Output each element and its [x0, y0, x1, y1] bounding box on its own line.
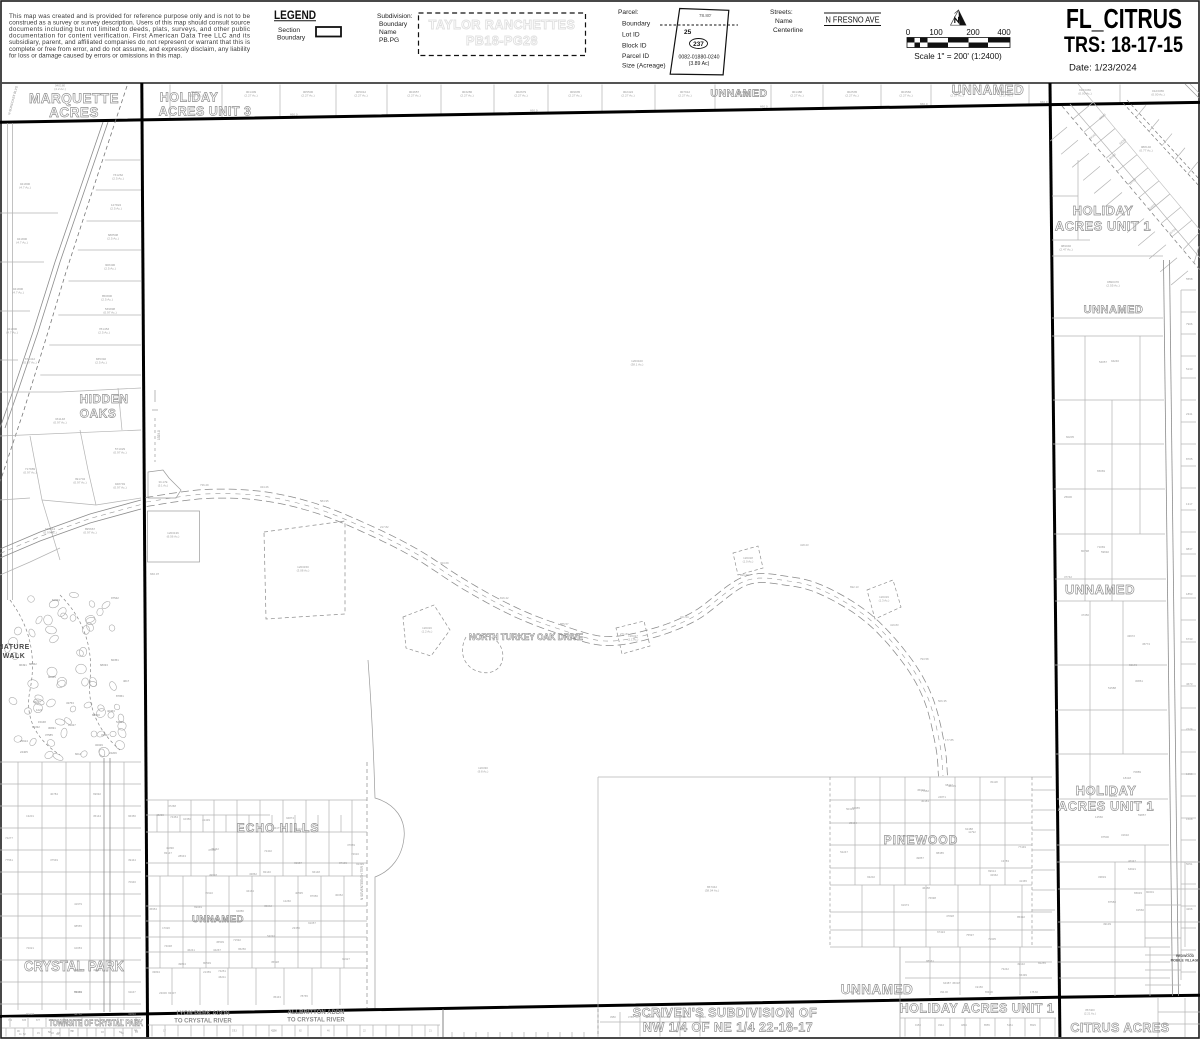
svg-text:(2.27 Ac.): (2.27 Ac.) [899, 94, 912, 98]
svg-text:5558: 5558 [1186, 277, 1193, 281]
svg-text:ACRES UNIT 1: ACRES UNIT 1 [1058, 799, 1154, 814]
svg-text:30052: 30052 [335, 893, 343, 897]
svg-text:32029: 32029 [95, 743, 103, 747]
svg-text:2341: 2341 [1186, 412, 1193, 416]
svg-text:25194: 25194 [849, 821, 857, 825]
svg-text:0: 0 [906, 28, 911, 37]
svg-text:(2.27 Ac.): (2.27 Ac.) [678, 94, 691, 98]
svg-text:TO CRYSTAL RIVER: TO CRYSTAL RIVER [287, 1018, 345, 1024]
svg-text:28643: 28643 [178, 854, 186, 858]
svg-text:54057: 54057 [1099, 360, 1107, 364]
svg-text:65933: 65933 [1134, 891, 1142, 895]
svg-text:33834: 33834 [152, 970, 160, 974]
svg-text:74038: 74038 [164, 944, 172, 948]
svg-text:23356: 23356 [292, 926, 300, 930]
svg-text:(2.21 Ac.): (2.21 Ac.) [1084, 1011, 1096, 1015]
svg-text:77449: 77449 [1018, 845, 1026, 849]
svg-text:37549: 37549 [50, 858, 58, 862]
svg-text:34267: 34267 [213, 948, 221, 952]
svg-text:95256: 95256 [238, 947, 246, 951]
svg-text:73242: 73242 [1001, 967, 1009, 971]
svg-text:177.85: 177.85 [945, 738, 954, 742]
svg-text:Subdivision:: Subdivision: [377, 13, 413, 20]
svg-text:UNNAMED: UNNAMED [1084, 304, 1144, 316]
svg-text:(2.5 Ac.): (2.5 Ac.) [98, 331, 110, 335]
svg-text:45509: 45509 [216, 940, 224, 944]
svg-text:80539: 80539 [203, 961, 211, 965]
svg-text:66148: 66148 [312, 870, 320, 874]
svg-text:59857: 59857 [1138, 813, 1146, 817]
svg-text:3950: 3950 [610, 1015, 616, 1019]
svg-text:(2.27 Ac.): (2.27 Ac.) [514, 94, 527, 98]
svg-text:Section: Section [278, 27, 300, 34]
svg-text:97500: 97500 [1101, 835, 1109, 839]
svg-text:(0.97 Ac.): (0.97 Ac.) [113, 451, 126, 455]
svg-text:91973: 91973 [901, 903, 909, 907]
svg-text:83147: 83147 [164, 851, 172, 855]
svg-text:88062: 88062 [29, 662, 37, 666]
svg-text:HOLIDAY: HOLIDAY [1076, 783, 1137, 798]
svg-text:HOLIDAY: HOLIDAY [1073, 203, 1134, 218]
svg-text:51588: 51588 [1108, 686, 1116, 690]
svg-text:35928: 35928 [271, 960, 279, 964]
svg-text:Block ID: Block ID [622, 43, 647, 50]
svg-text:15168: 15168 [38, 720, 46, 724]
svg-text:25: 25 [684, 29, 692, 36]
svg-text:69692: 69692 [93, 792, 101, 796]
svg-text:37659: 37659 [347, 843, 355, 847]
svg-text:11792: 11792 [968, 830, 976, 834]
svg-text:237: 237 [693, 41, 704, 48]
svg-text:PINEWOOD: PINEWOOD [884, 833, 959, 847]
svg-text:24206: 24206 [109, 751, 117, 755]
svg-text:217.82: 217.82 [380, 525, 389, 529]
svg-text:(2.27 Ac.): (2.27 Ac.) [244, 94, 257, 98]
svg-text:(38.04 Ac.): (38.04 Ac.) [705, 889, 720, 893]
svg-text:72277: 72277 [5, 836, 13, 840]
svg-text:(4.7 Ac.): (4.7 Ac.) [16, 241, 28, 245]
svg-text:1317: 1317 [1186, 502, 1193, 506]
svg-text:46458: 46458 [922, 886, 930, 890]
svg-text:49824: 49824 [178, 962, 186, 966]
svg-text:ACRES UNIT 3: ACRES UNIT 3 [159, 105, 252, 119]
svg-text:(2.27 Ac.): (2.27 Ac.) [354, 94, 367, 98]
svg-text:TAYLOR RANCHETTES: TAYLOR RANCHETTES [429, 18, 576, 32]
svg-text:(2.5 Ac.): (2.5 Ac.) [107, 237, 119, 241]
svg-text:(0.97 Ac.): (0.97 Ac.) [23, 361, 36, 365]
svg-text:37742: 37742 [1064, 575, 1072, 579]
svg-text:(0.97 Ac.): (0.97 Ac.) [23, 471, 36, 475]
svg-text:419.83: 419.83 [890, 623, 899, 627]
svg-text:41979: 41979 [74, 902, 82, 906]
svg-text:32810: 32810 [128, 1012, 136, 1016]
svg-text:Centerline: Centerline [773, 27, 803, 34]
svg-text:85454: 85454 [74, 990, 82, 994]
svg-text:(2.5 Ac.): (2.5 Ac.) [104, 267, 116, 271]
svg-text:UNNAMED: UNNAMED [1065, 582, 1135, 597]
svg-text:93202: 93202 [867, 875, 875, 879]
svg-text:654: 654 [78, 1019, 83, 1022]
svg-text:6733: 6733 [1186, 637, 1193, 641]
svg-text:(38.1 Ac.): (38.1 Ac.) [631, 363, 644, 367]
svg-text:40595: 40595 [295, 891, 303, 895]
svg-text:24871: 24871 [938, 795, 946, 799]
svg-text:45954: 45954 [149, 907, 157, 911]
svg-text:41890: 41890 [166, 846, 174, 850]
svg-text:69049: 69049 [194, 905, 202, 909]
svg-text:1853: 1853 [1186, 592, 1193, 596]
svg-text:Name: Name [379, 29, 397, 36]
svg-text:340: 340 [134, 1019, 139, 1022]
svg-text:52247: 52247 [840, 850, 848, 854]
svg-text:721.24: 721.24 [680, 615, 689, 619]
svg-text:ACRES: ACRES [49, 105, 99, 120]
svg-text:Size (Acreage): Size (Acreage) [622, 63, 666, 70]
svg-text:TRS: 18-17-15: TRS: 18-17-15 [1064, 32, 1183, 57]
svg-text:97542: 97542 [111, 596, 119, 600]
svg-text:5133: 5133 [1186, 367, 1193, 371]
svg-text:835: 835 [22, 1019, 27, 1022]
svg-text:88900: 88900 [92, 713, 100, 717]
svg-text:99687: 99687 [294, 861, 302, 865]
svg-text:74251: 74251 [218, 969, 226, 973]
svg-text:30831: 30831 [48, 726, 56, 730]
svg-text:(0.97 Ac.): (0.97 Ac.) [83, 531, 96, 535]
svg-text:82140: 82140 [263, 870, 271, 874]
svg-text:98555: 98555 [74, 924, 82, 928]
svg-text:5161: 5161 [1007, 1023, 1013, 1027]
svg-text:(1.2 Ac.): (1.2 Ac.) [422, 630, 433, 634]
svg-text:(2.27 Ac.): (2.27 Ac.) [845, 94, 858, 98]
svg-text:4673: 4673 [1186, 682, 1193, 686]
svg-text:(4.7 Ac.): (4.7 Ac.) [19, 186, 31, 190]
svg-text:HIDDEN: HIDDEN [79, 392, 128, 406]
svg-text:48752: 48752 [74, 1012, 82, 1016]
svg-text:90301: 90301 [1146, 890, 1154, 894]
svg-text:(6.56 Ac.): (6.56 Ac.) [167, 535, 180, 539]
svg-text:71069: 71069 [1097, 545, 1105, 549]
svg-text:78765: 78765 [300, 994, 308, 998]
svg-text:32962: 32962 [990, 873, 998, 877]
svg-text:(0.97 Ac.): (0.97 Ac.) [73, 481, 86, 485]
svg-text:72616: 72616 [351, 852, 359, 856]
svg-text:(9.8 Ac.): (9.8 Ac.) [478, 770, 489, 774]
svg-text:660.07: 660.07 [150, 572, 160, 576]
svg-text:54964: 54964 [116, 720, 124, 724]
svg-text:62694: 62694 [52, 598, 60, 602]
svg-text:8555: 8555 [984, 1023, 990, 1027]
svg-text:PB18-PG28: PB18-PG28 [466, 34, 538, 48]
svg-text:4804: 4804 [961, 1023, 967, 1027]
svg-text:(0.77 Ac.): (0.77 Ac.) [1139, 149, 1152, 153]
svg-text:Streets:: Streets: [770, 9, 793, 16]
svg-text:200: 200 [966, 28, 980, 37]
svg-text:69614: 69614 [988, 869, 996, 873]
svg-text:25914: 25914 [20, 739, 28, 743]
svg-text:43972: 43972 [1127, 634, 1135, 638]
svg-text:12560: 12560 [1095, 815, 1103, 819]
svg-text:10053: 10053 [74, 946, 82, 950]
svg-text:(1.1 Ac.): (1.1 Ac.) [628, 638, 639, 642]
svg-text:ECHO HILLS: ECHO HILLS [237, 821, 320, 835]
svg-text:UNNAMED: UNNAMED [841, 982, 914, 997]
svg-text:70910: 70910 [205, 891, 213, 895]
svg-text:PB.PG: PB.PG [379, 37, 399, 44]
svg-text:Boundary: Boundary [622, 21, 651, 28]
svg-text:584.95: 584.95 [320, 499, 329, 503]
svg-text:HOLIDAY: HOLIDAY [160, 91, 219, 105]
svg-text:394.96: 394.96 [940, 990, 948, 994]
svg-text:82351: 82351 [111, 658, 119, 662]
svg-text:64921: 64921 [1128, 867, 1136, 871]
svg-text:(3.08 Ac.): (3.08 Ac.) [297, 569, 310, 573]
svg-text:91167: 91167 [128, 990, 136, 994]
svg-text:45774: 45774 [1142, 642, 1150, 646]
svg-text:MARQUETTE: MARQUETTE [29, 91, 119, 106]
svg-text:82255: 82255 [1038, 961, 1046, 965]
svg-text:43753: 43753 [66, 701, 74, 705]
svg-text:92149: 92149 [1129, 663, 1137, 667]
svg-text:94874: 94874 [286, 816, 294, 820]
svg-text:34164: 34164 [246, 889, 254, 893]
svg-text:91057: 91057 [308, 921, 316, 925]
svg-text:ALLBRITTON ADDN: ALLBRITTON ADDN [288, 1010, 345, 1016]
svg-text:41439: 41439 [202, 818, 210, 822]
svg-text:19150: 19150 [975, 985, 983, 989]
svg-text:UNNAMED: UNNAMED [192, 914, 244, 925]
svg-text:(5.1 Ac.): (5.1 Ac.) [158, 483, 168, 487]
svg-text:(0.97 Ac.): (0.97 Ac.) [103, 311, 116, 315]
svg-text:109.69: 109.69 [895, 990, 903, 994]
svg-text:87139: 87139 [339, 861, 347, 865]
svg-text:13201: 13201 [26, 814, 34, 818]
svg-text:4266: 4266 [1186, 907, 1193, 911]
svg-text:49132: 49132 [1017, 962, 1025, 966]
svg-text:9837: 9837 [1186, 547, 1193, 551]
svg-text:Lot ID: Lot ID [622, 32, 640, 39]
svg-text:35144: 35144 [93, 814, 101, 818]
svg-text:70889: 70889 [1133, 770, 1141, 774]
svg-text:90065: 90065 [48, 675, 56, 679]
svg-text:54092: 54092 [267, 934, 275, 938]
svg-text:49618: 49618 [209, 873, 217, 877]
svg-text:1329.0: 1329.0 [157, 430, 161, 440]
svg-text:323.69: 323.69 [440, 561, 449, 565]
svg-text:87656: 87656 [310, 894, 318, 898]
svg-text:77561: 77561 [5, 858, 13, 862]
svg-text:40363: 40363 [107, 709, 115, 713]
svg-text:23006: 23006 [159, 991, 167, 995]
svg-text:REDWOOD: REDWOOD [1176, 954, 1195, 958]
svg-text:877: 877 [36, 1019, 41, 1022]
svg-text:692.13: 692.13 [850, 585, 859, 589]
svg-text:Boundary: Boundary [277, 35, 306, 42]
svg-text:7906: 7906 [1186, 322, 1193, 326]
svg-text:71592: 71592 [233, 938, 241, 942]
svg-text:HOLIDAY ACRES UNIT 1: HOLIDAY ACRES UNIT 1 [900, 1002, 1055, 1016]
svg-text:13783: 13783 [1001, 859, 1009, 863]
svg-text:12260: 12260 [283, 899, 291, 903]
svg-text:659.30: 659.30 [985, 990, 993, 994]
svg-text:71605: 71605 [988, 937, 996, 941]
svg-text:10350: 10350 [183, 817, 191, 821]
svg-text:45018: 45018 [952, 981, 960, 985]
svg-text:6014: 6014 [75, 752, 82, 756]
svg-text:33819: 33819 [1098, 875, 1106, 879]
svg-text:76698: 76698 [928, 896, 936, 900]
svg-text:87951: 87951 [116, 694, 124, 698]
svg-text:(1.0 Ac.): (1.0 Ac.) [743, 560, 754, 564]
svg-text:(3.89 Ac): (3.89 Ac) [689, 61, 710, 67]
svg-text:LEGEND: LEGEND [274, 10, 316, 22]
svg-text:for loss or damage caused by e: for loss or damage caused by errors or o… [9, 52, 182, 59]
svg-text:N SEVENTEENTH TER: N SEVENTEENTH TER [360, 865, 364, 900]
svg-text:46241: 46241 [187, 948, 195, 952]
svg-text:(2.5 Ac.): (2.5 Ac.) [112, 177, 124, 181]
svg-text:(2.27 Ac.): (2.27 Ac.) [568, 94, 581, 98]
svg-text:43862: 43862 [249, 872, 257, 876]
svg-text:67424: 67424 [937, 930, 945, 934]
svg-text:885.57: 885.57 [560, 622, 569, 626]
svg-text:Date: 1/23/2024: Date: 1/23/2024 [1069, 63, 1137, 74]
svg-text:(2.27 Ac.): (2.27 Ac.) [621, 94, 634, 98]
svg-text:39444: 39444 [128, 858, 136, 862]
svg-text:96356: 96356 [128, 814, 136, 818]
svg-text:136: 136 [92, 1019, 97, 1022]
svg-text:70946: 70946 [128, 880, 136, 884]
svg-text:UNNAMED: UNNAMED [710, 88, 767, 100]
svg-text:LYON PARK ADDN: LYON PARK ADDN [176, 1011, 229, 1017]
svg-text:91027: 91027 [68, 723, 76, 727]
svg-text:75597: 75597 [966, 933, 974, 937]
svg-text:170: 170 [120, 1019, 125, 1022]
svg-text:993: 993 [64, 1019, 69, 1022]
svg-text:(2.5 Ac.): (2.5 Ac.) [110, 207, 122, 211]
svg-text:25906: 25906 [1064, 495, 1072, 499]
svg-text:793.58: 793.58 [920, 657, 929, 661]
svg-text:CITRUS ACRES: CITRUS ACRES [1070, 1021, 1169, 1035]
svg-text:1508: 1508 [1186, 817, 1193, 821]
svg-text:400: 400 [997, 28, 1011, 37]
svg-text:(2.27 Ac.): (2.27 Ac.) [407, 94, 420, 98]
svg-text:80798: 80798 [1081, 549, 1089, 553]
svg-text:94246: 94246 [1111, 359, 1119, 363]
svg-text:344.26: 344.26 [260, 485, 269, 489]
svg-text:8529: 8529 [1030, 1023, 1036, 1027]
svg-text:(2.47 Ac.): (2.47 Ac.) [1059, 248, 1072, 252]
svg-text:74454: 74454 [170, 815, 178, 819]
svg-text:(4.7 Ac.): (4.7 Ac.) [6, 331, 18, 335]
svg-text:8705: 8705 [1186, 457, 1193, 461]
svg-text:CRYSTAL PARK: CRYSTAL PARK [24, 959, 124, 975]
svg-text:60328: 60328 [26, 1012, 34, 1016]
svg-text:47056: 47056 [208, 848, 216, 852]
svg-text:3344: 3344 [938, 1023, 944, 1027]
svg-text:FL_CITRUS: FL_CITRUS [1066, 3, 1182, 34]
svg-text:NW 1/4 OF NE 1/4 22-18-17: NW 1/4 OF NE 1/4 22-18-17 [643, 1021, 813, 1035]
svg-text:NORTH TURKEY OAK DRIVE: NORTH TURKEY OAK DRIVE [469, 632, 583, 642]
svg-text:Name: Name [775, 18, 793, 25]
svg-text:(0.00 Ac.): (0.00 Ac.) [1151, 93, 1164, 97]
svg-text:17026: 17026 [162, 926, 170, 930]
svg-text:0082-01880-0240: 0082-01880-0240 [679, 55, 720, 61]
svg-text:88385: 88385 [936, 851, 944, 855]
svg-text:9153: 9153 [915, 1023, 921, 1027]
svg-text:30861: 30861 [1135, 679, 1143, 683]
svg-text:4617: 4617 [123, 679, 130, 683]
svg-text:18418: 18418 [1123, 776, 1131, 780]
svg-text:(2.27 Ac.): (2.27 Ac.) [790, 94, 803, 98]
svg-text:68033: 68033 [100, 663, 108, 667]
svg-text:93307: 93307 [168, 991, 176, 995]
svg-text:35042: 35042 [264, 904, 272, 908]
svg-text:(2.27 Ac.): (2.27 Ac.) [301, 94, 314, 98]
svg-text:WALK: WALK [3, 653, 26, 660]
svg-text:SCRIVEN'S SUBDIVISION OF: SCRIVEN'S SUBDIVISION OF [633, 1006, 817, 1020]
svg-text:(4.2 Ac.): (4.2 Ac.) [54, 87, 66, 91]
svg-text:96499: 96499 [1019, 973, 1027, 977]
svg-text:361.95: 361.95 [850, 990, 858, 994]
svg-text:37585: 37585 [45, 733, 53, 737]
svg-text:741: 741 [8, 1019, 13, 1022]
svg-text:OAKS: OAKS [80, 407, 117, 421]
svg-text:Parcel ID: Parcel ID [622, 53, 649, 60]
svg-text:MOBILE VILLAGE: MOBILE VILLAGE [1171, 959, 1200, 963]
svg-text:599: 599 [50, 1019, 55, 1022]
svg-text:49139: 49139 [1103, 922, 1111, 926]
svg-text:N FRESNO AVE: N FRESNO AVE [826, 16, 880, 25]
svg-text:(0.97 Ac.): (0.97 Ac.) [113, 486, 126, 490]
svg-text:418.23: 418.23 [800, 543, 809, 547]
svg-text:61332: 61332 [32, 725, 40, 729]
svg-text:91399: 91399 [356, 862, 364, 866]
svg-text:24405: 24405 [20, 750, 28, 754]
svg-text:(2.5 Ac.): (2.5 Ac.) [101, 298, 113, 302]
svg-text:41365: 41365 [1019, 879, 1027, 883]
svg-text:5051: 5051 [1186, 862, 1193, 866]
svg-text:Scale 1" = 200' (1:2400): Scale 1" = 200' (1:2400) [914, 52, 1002, 61]
svg-text:78.80': 78.80' [699, 13, 711, 18]
svg-text:(1.3 Ac.): (1.3 Ac.) [879, 599, 890, 603]
svg-text:35443: 35443 [273, 995, 281, 999]
svg-text:49857: 49857 [916, 856, 924, 860]
svg-text:Boundary: Boundary [379, 21, 408, 28]
svg-text:Parcel:: Parcel: [618, 9, 639, 16]
svg-text:(2.55 Ac.): (2.55 Ac.) [1106, 284, 1119, 288]
svg-text:53227: 53227 [33, 700, 41, 704]
svg-text:91927: 91927 [342, 957, 350, 961]
svg-text:94886: 94886 [236, 909, 244, 913]
svg-text:88561: 88561 [926, 959, 934, 963]
svg-text:(2.5 Ac.): (2.5 Ac.) [95, 361, 107, 365]
svg-text:63955: 63955 [852, 806, 860, 810]
svg-text:60205: 60205 [1066, 435, 1074, 439]
svg-text:85392: 85392 [1017, 915, 1025, 919]
svg-text:48290: 48290 [156, 813, 164, 817]
svg-text:816.42: 816.42 [500, 596, 509, 600]
svg-text:98117: 98117 [945, 783, 953, 787]
svg-text:47268: 47268 [168, 804, 176, 808]
svg-text:40784: 40784 [50, 792, 58, 796]
svg-text:2124: 2124 [1186, 727, 1193, 731]
svg-text:59692: 59692 [1101, 550, 1109, 554]
svg-text:91560: 91560 [1136, 908, 1144, 912]
svg-text:45003: 45003 [917, 788, 925, 792]
svg-text:21359: 21359 [203, 970, 211, 974]
svg-text:30181: 30181 [921, 799, 929, 803]
svg-text:(0.97 Ac.): (0.97 Ac.) [53, 421, 66, 425]
svg-text:736.29: 736.29 [200, 483, 209, 487]
